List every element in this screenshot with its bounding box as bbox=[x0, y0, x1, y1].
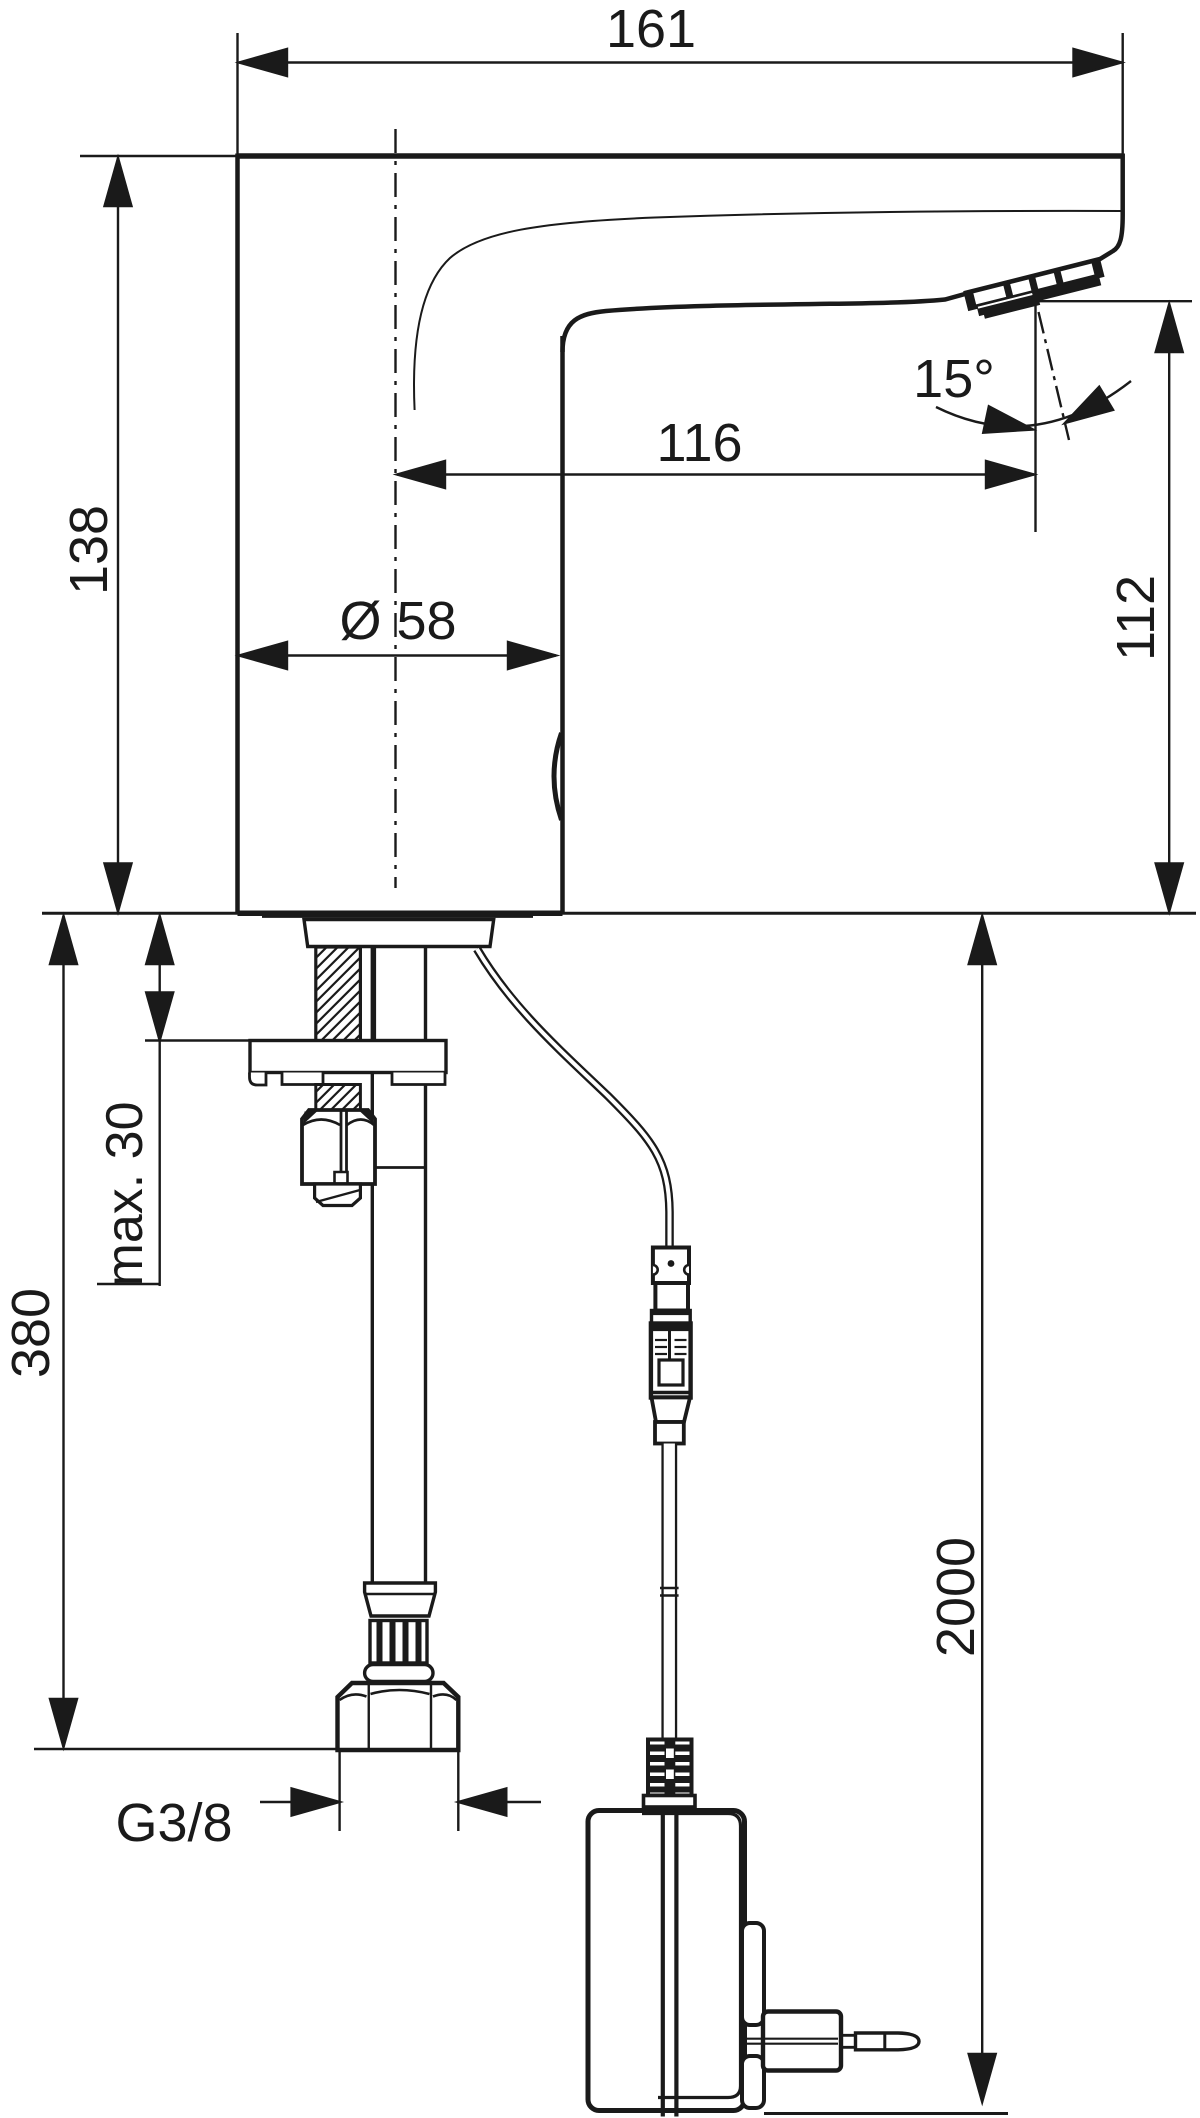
svg-text:G3/8: G3/8 bbox=[115, 1793, 232, 1853]
svg-text:Ø 58: Ø 58 bbox=[339, 591, 456, 651]
svg-text:112: 112 bbox=[1106, 575, 1166, 661]
svg-text:161: 161 bbox=[606, 0, 696, 59]
svg-text:116: 116 bbox=[656, 413, 742, 473]
svg-text:2000: 2000 bbox=[926, 1537, 986, 1657]
svg-text:380: 380 bbox=[1, 1288, 61, 1378]
svg-text:max. 30: max. 30 bbox=[96, 1102, 154, 1287]
svg-text:15°: 15° bbox=[913, 349, 995, 409]
svg-text:138: 138 bbox=[59, 505, 119, 595]
